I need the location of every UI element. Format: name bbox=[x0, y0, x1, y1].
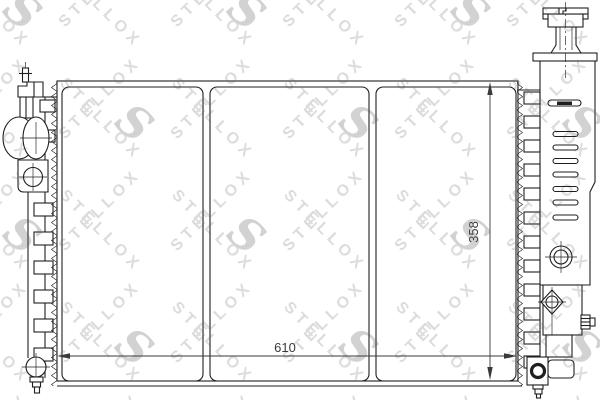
tank-slot bbox=[553, 145, 578, 150]
left-drain-plug bbox=[33, 382, 41, 387]
header-clip bbox=[524, 212, 540, 224]
neck-right bbox=[576, 27, 581, 53]
header-clip bbox=[524, 188, 540, 200]
header-clip bbox=[524, 308, 540, 320]
header-clip bbox=[524, 140, 540, 152]
bottom-drain-plug bbox=[537, 394, 541, 398]
filler-neck bbox=[551, 27, 581, 53]
side-nipple bbox=[581, 315, 595, 329]
neck-left bbox=[551, 27, 556, 53]
header-clip bbox=[524, 260, 540, 272]
tank-slot bbox=[553, 172, 578, 177]
tank-boss bbox=[545, 241, 577, 273]
header-clip bbox=[524, 92, 540, 104]
bottom-drain-plug bbox=[533, 385, 543, 389]
header-clip bbox=[524, 284, 540, 296]
tank-slot bbox=[553, 132, 578, 137]
nipple-tip bbox=[590, 318, 595, 326]
tank-slots bbox=[548, 100, 581, 220]
core-outline bbox=[57, 81, 518, 381]
left-drain-plug bbox=[35, 387, 40, 393]
bottom-drain-plug bbox=[535, 389, 542, 394]
tank-slot bbox=[553, 187, 578, 192]
left-fin-band bbox=[49, 82, 57, 386]
bleed-pin-body bbox=[23, 68, 29, 82]
header-clip bbox=[524, 236, 540, 248]
tank-slot-mark bbox=[557, 102, 572, 106]
width-dimension-label: 610 bbox=[274, 340, 296, 355]
cap-tab bbox=[583, 14, 588, 19]
tank-slot bbox=[553, 159, 578, 164]
top-bracket bbox=[18, 82, 43, 97]
cap-tab bbox=[543, 14, 548, 19]
header-clip bbox=[524, 164, 540, 176]
left-drain-plug bbox=[30, 377, 43, 382]
header-clip bbox=[524, 332, 540, 344]
tank-slot bbox=[553, 215, 578, 220]
right-header bbox=[517, 61, 540, 386]
radiator-drawing: 610 358 bbox=[0, 0, 600, 400]
tank-slot bbox=[553, 200, 578, 205]
bottom-bracket bbox=[546, 335, 572, 357]
radiator-technical-drawing: 610 358 STELLOXSTELLOXSSTELLOXSTELLOXSTE… bbox=[0, 0, 600, 400]
header-clip bbox=[524, 116, 540, 128]
tank-flange bbox=[533, 53, 597, 61]
height-dimension-label: 358 bbox=[466, 221, 481, 243]
bottom-flange bbox=[548, 360, 574, 378]
right-fin-band bbox=[517, 82, 525, 386]
